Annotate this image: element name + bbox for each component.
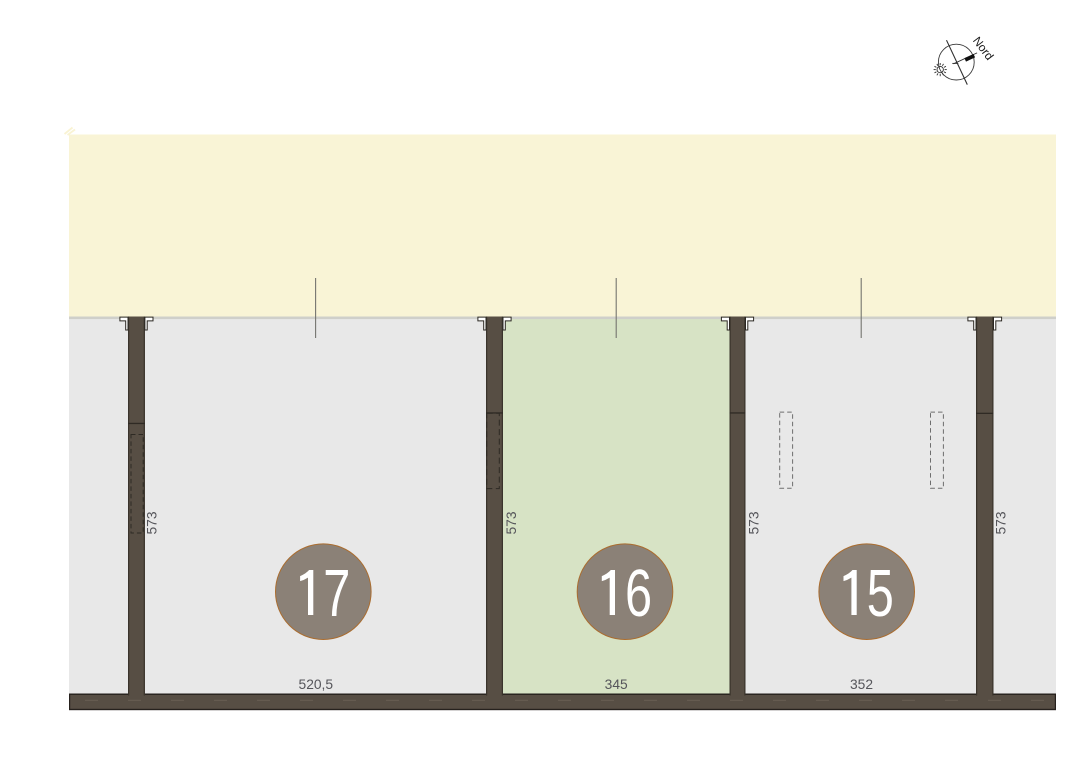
svg-text:7: 7	[323, 557, 350, 631]
svg-text:5: 5	[867, 557, 894, 631]
svg-text:352: 352	[850, 677, 873, 692]
svg-text:345: 345	[605, 677, 628, 692]
svg-text:520,5: 520,5	[299, 677, 334, 692]
svg-text:573: 573	[746, 511, 761, 534]
svg-text:573: 573	[504, 511, 519, 534]
svg-text:573: 573	[994, 511, 1009, 534]
svg-text:573: 573	[144, 511, 159, 534]
svg-text:6: 6	[625, 557, 652, 631]
